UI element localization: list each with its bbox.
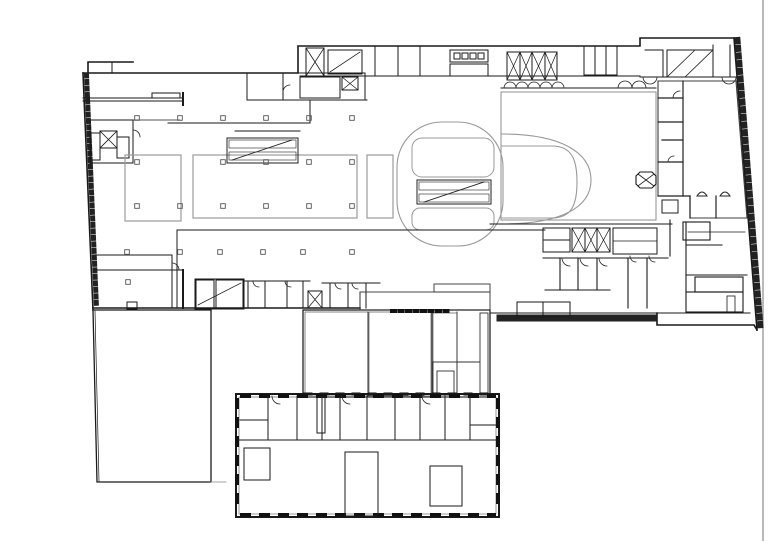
stair-lower-right-icon <box>613 228 657 254</box>
right-wing <box>490 220 750 318</box>
core-cluster-top <box>247 48 365 100</box>
stage-block <box>303 284 490 397</box>
lower-band-rooms <box>96 255 380 309</box>
stair-top-right-icon <box>667 50 713 77</box>
large-empty-room <box>93 302 226 482</box>
octagon-elevator-icon <box>636 172 656 188</box>
highlighted-suite[interactable] <box>658 81 747 218</box>
edge-tick-marks <box>87 40 761 328</box>
columns-hollow <box>125 116 355 285</box>
tenant-outline-b <box>193 155 357 218</box>
tenant-outline-c <box>367 155 393 218</box>
anchor-room-outline <box>501 92 656 220</box>
tenant-outline-a <box>125 155 181 221</box>
core-upper-left <box>90 120 180 163</box>
highlighted-suite-walls <box>658 78 730 218</box>
annex-building <box>236 394 499 517</box>
highlighted-suite-group <box>658 81 747 218</box>
floorplan-canvas <box>0 0 768 541</box>
atrium-oval <box>397 122 503 246</box>
mall-middle <box>125 88 672 255</box>
elevator-bank-lower-icon <box>543 228 610 252</box>
escalator-central-icon <box>417 180 491 204</box>
escalator-upper-left-icon <box>227 131 300 163</box>
floor-plan-svg <box>0 0 768 541</box>
door-arcs <box>133 77 736 404</box>
